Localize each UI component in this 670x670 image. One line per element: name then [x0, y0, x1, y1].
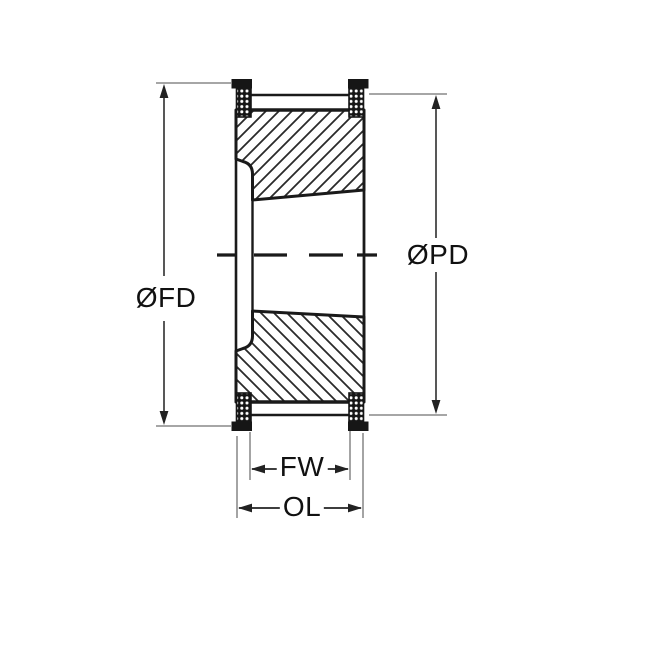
lower-hub-section [236, 311, 364, 402]
arrow-right [335, 465, 349, 474]
arrow-right [348, 504, 362, 513]
arrow-up [432, 95, 441, 109]
arrow-down [432, 400, 441, 414]
pulley-drawing: ØFD ØPD FW OL [0, 0, 670, 670]
upper-hub-section [236, 110, 364, 200]
arrow-left [251, 465, 265, 474]
arrow-up [160, 84, 169, 98]
pitch-diameter-label: ØPD [404, 241, 472, 269]
arrow-left [238, 504, 252, 513]
fd-dimension [160, 84, 169, 425]
drawing-canvas [0, 0, 670, 670]
flange-diameter-label: ØFD [133, 284, 200, 312]
overall-length-label: OL [280, 493, 324, 521]
arrow-down [160, 411, 169, 425]
face-width-label: FW [277, 453, 328, 481]
